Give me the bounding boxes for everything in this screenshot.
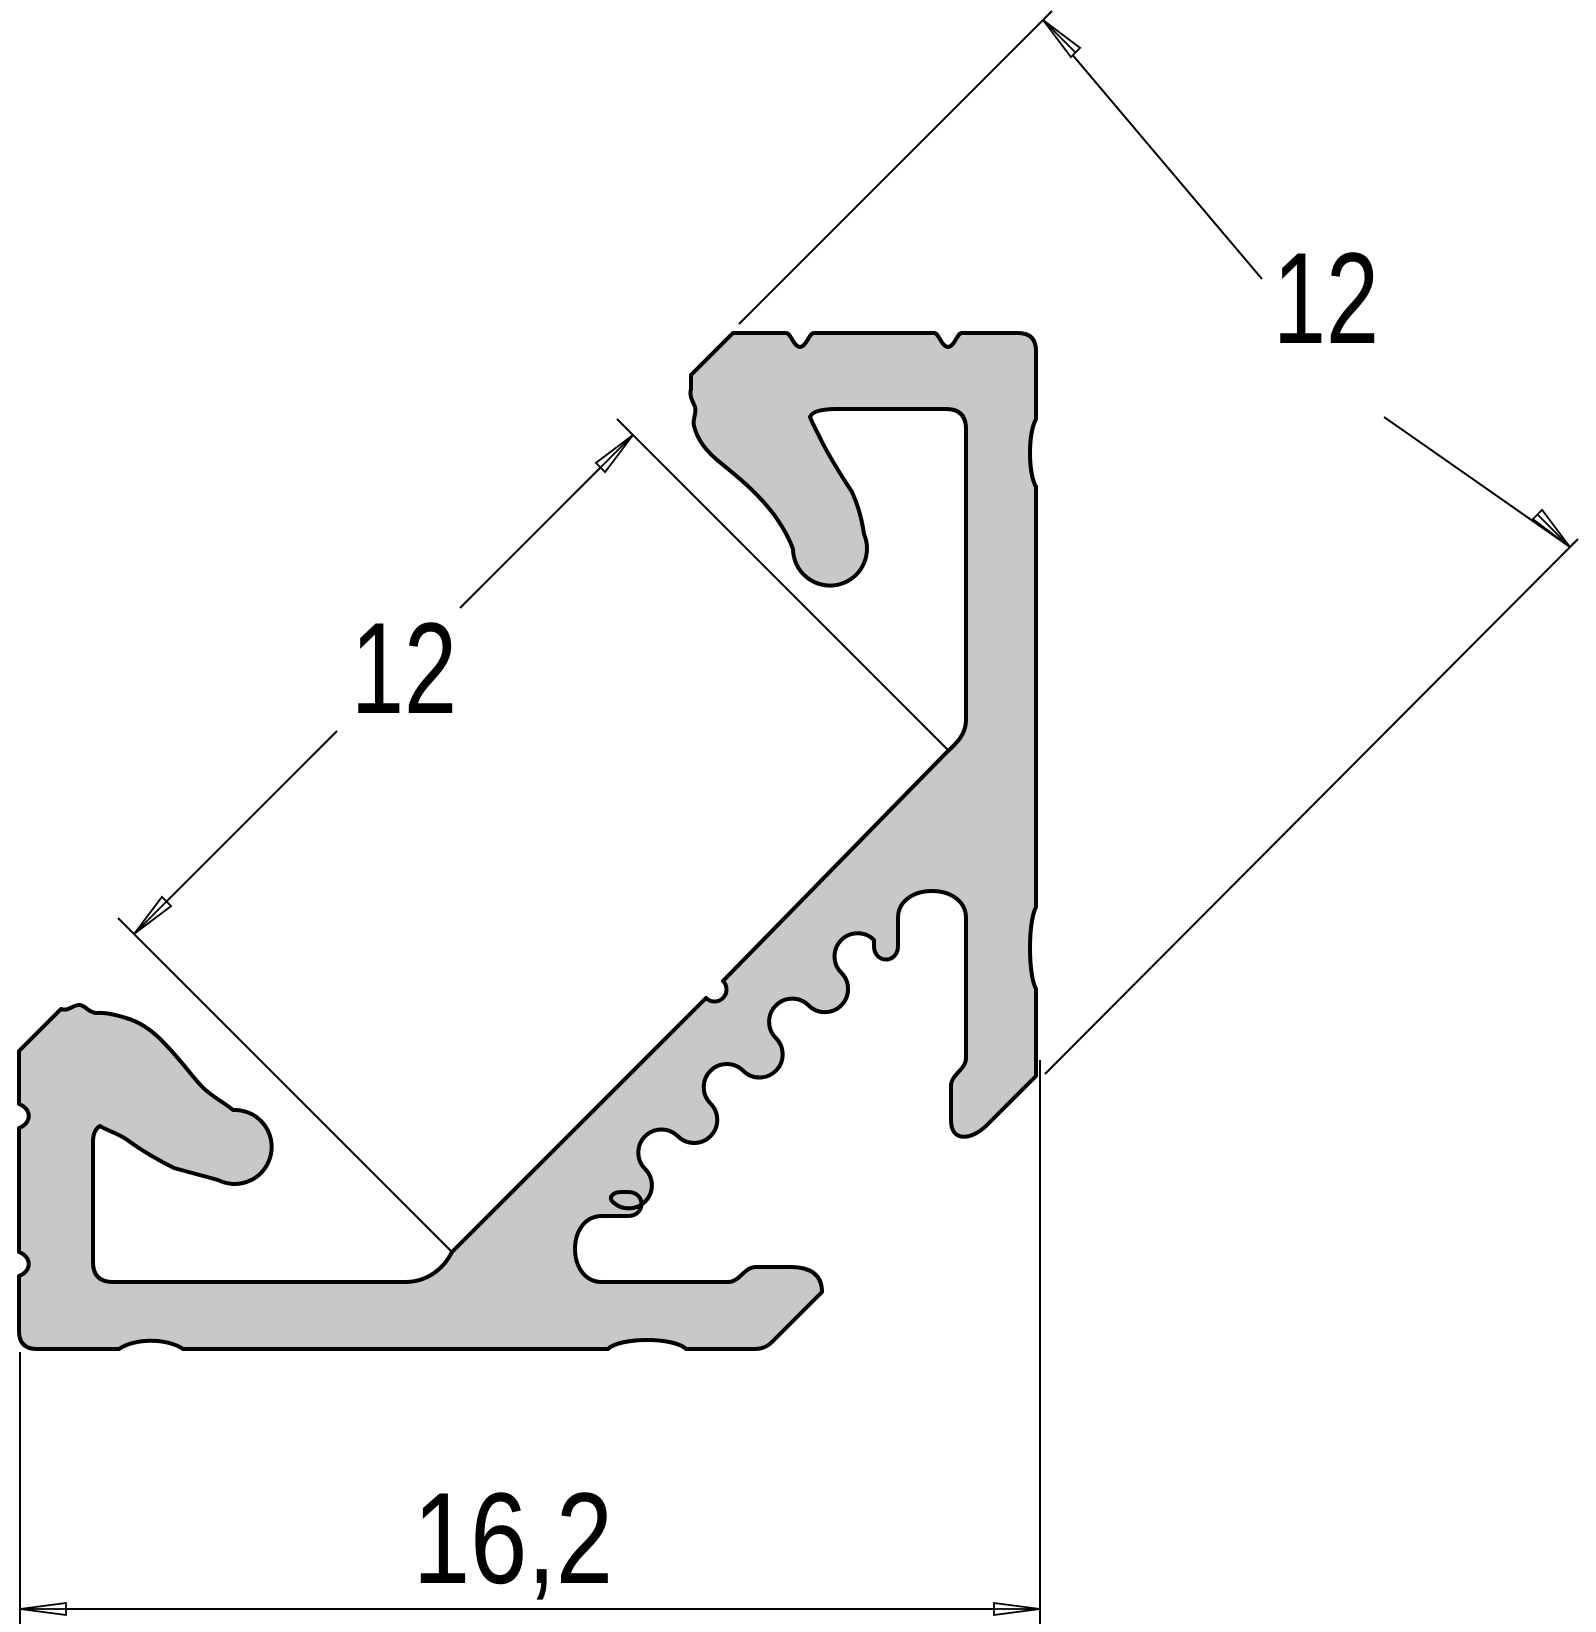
extension-line (739, 11, 1052, 324)
dimension-value-width: 16,2 (413, 1465, 613, 1611)
technical-drawing-page: 16,2 12 12 (0, 0, 1596, 1632)
dimension-line (1043, 20, 1262, 279)
extension-line (1045, 539, 1578, 1074)
dimension-line (1384, 417, 1570, 547)
arrowhead (1533, 510, 1570, 547)
technical-drawing-canvas: 16,2 12 12 (0, 0, 1596, 1632)
arrowhead (596, 435, 633, 472)
dimension-value-face: 12 (351, 595, 457, 741)
arrowhead (20, 1603, 66, 1615)
profile-cross-section (19, 333, 1036, 1349)
arrowhead (1043, 20, 1080, 57)
arrowhead (134, 897, 171, 934)
dimension-value-leg: 12 (1273, 225, 1379, 371)
arrowhead (994, 1603, 1040, 1615)
